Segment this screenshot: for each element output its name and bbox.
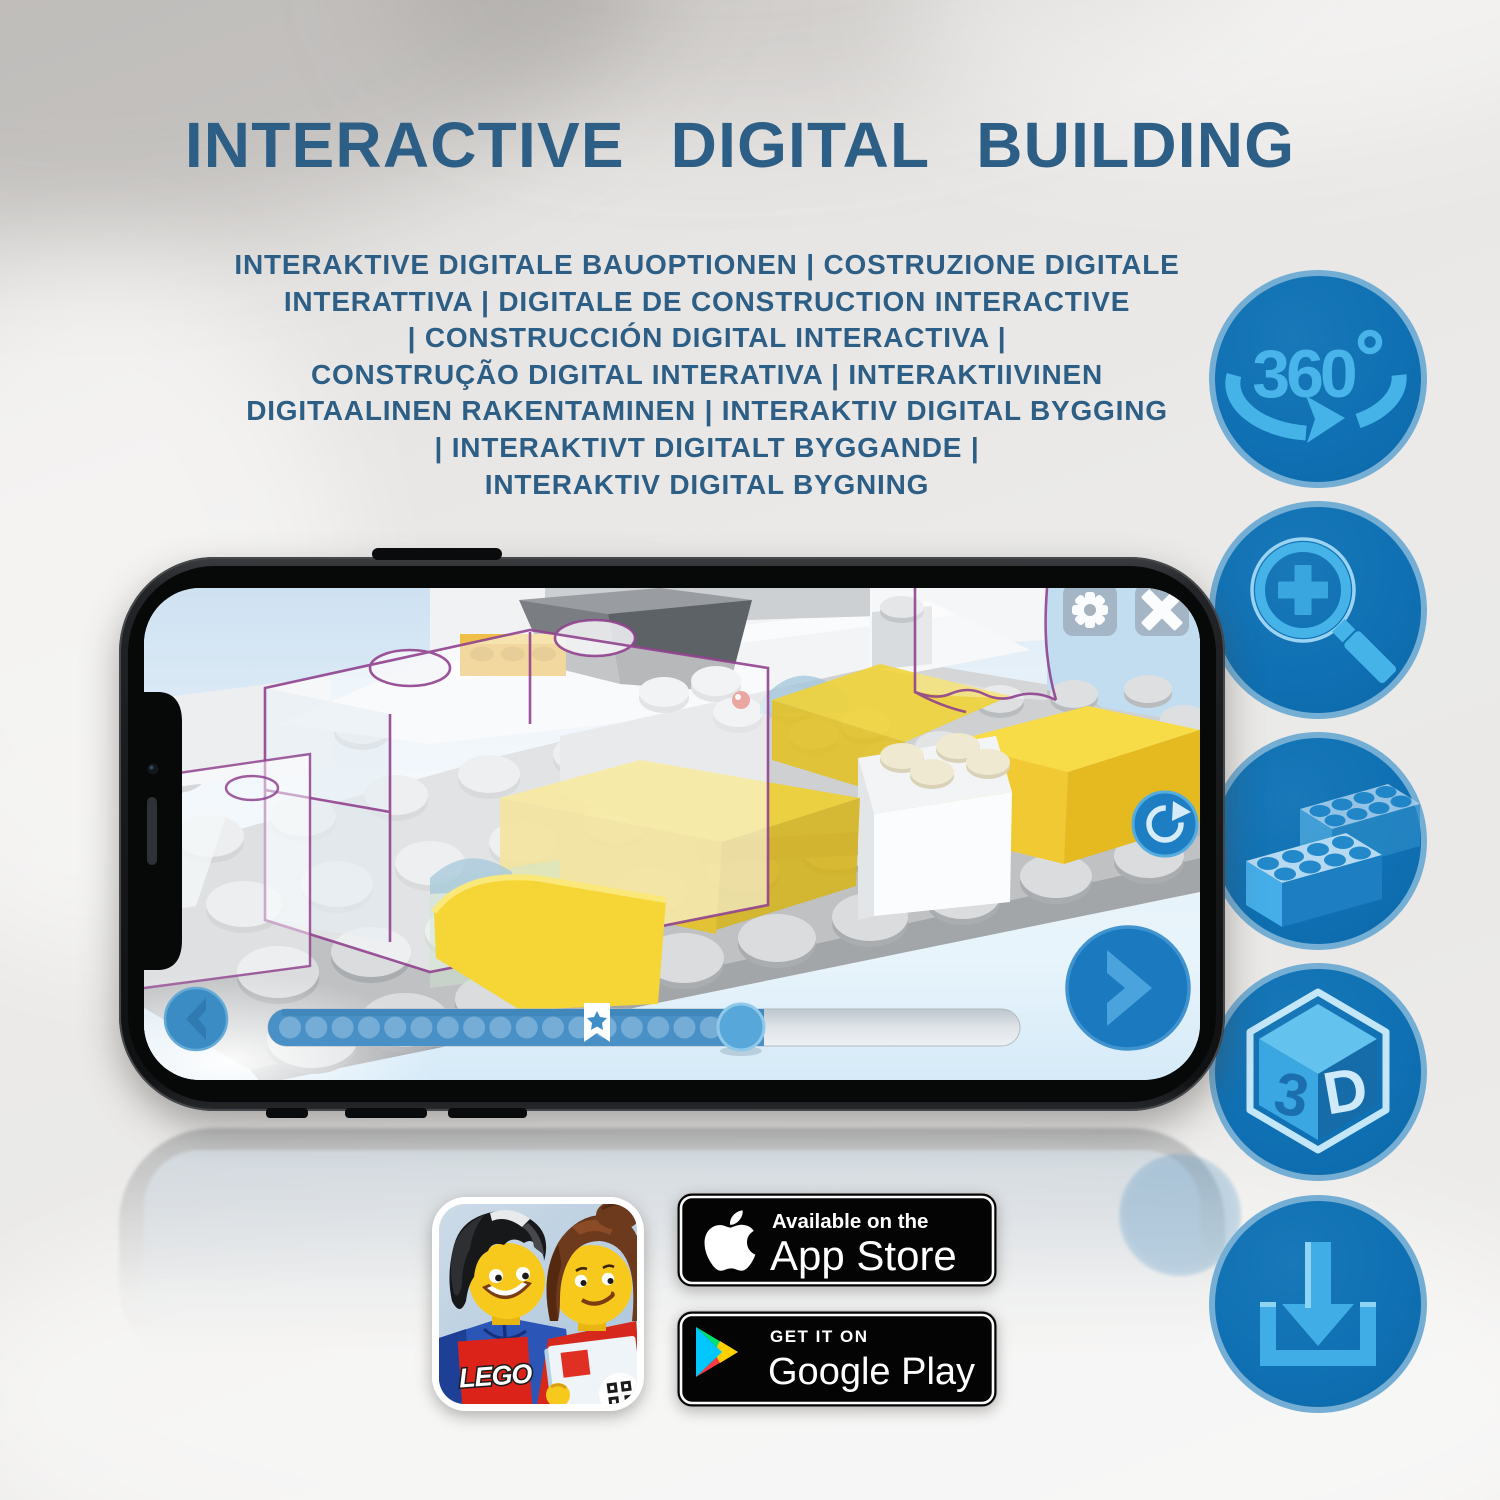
svg-text:360: 360 <box>1252 336 1356 412</box>
svg-text:LEGO: LEGO <box>458 1358 533 1393</box>
svg-text:App Store: App Store <box>770 1232 957 1279</box>
svg-text:GET IT ON: GET IT ON <box>770 1327 869 1346</box>
svg-text:Available on the: Available on the <box>772 1210 928 1233</box>
svg-text:Google Play: Google Play <box>768 1351 975 1393</box>
